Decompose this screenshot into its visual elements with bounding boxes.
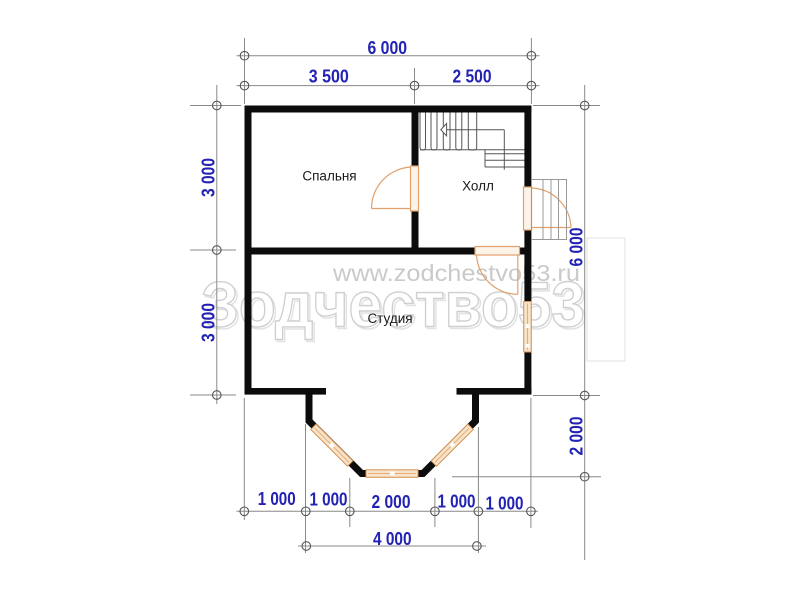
svg-text:1 000: 1 000	[438, 492, 476, 512]
svg-text:2 000: 2 000	[567, 417, 587, 456]
svg-text:1 000: 1 000	[258, 489, 296, 509]
svg-text:2 000: 2 000	[372, 492, 411, 512]
svg-text:6 000: 6 000	[368, 38, 408, 58]
svg-text:Холл: Холл	[462, 179, 494, 194]
svg-text:3 000: 3 000	[199, 303, 219, 342]
svg-text:2 500: 2 500	[453, 66, 492, 86]
svg-text:1 000: 1 000	[310, 490, 348, 510]
svg-text:1 000: 1 000	[486, 494, 524, 514]
svg-text:3 500: 3 500	[309, 66, 349, 86]
svg-text:3 000: 3 000	[199, 158, 219, 197]
svg-text:6 000: 6 000	[567, 228, 587, 267]
svg-text:Студия: Студия	[367, 311, 412, 326]
svg-text:Спальня: Спальня	[302, 169, 356, 184]
svg-text:4 000: 4 000	[373, 529, 412, 549]
